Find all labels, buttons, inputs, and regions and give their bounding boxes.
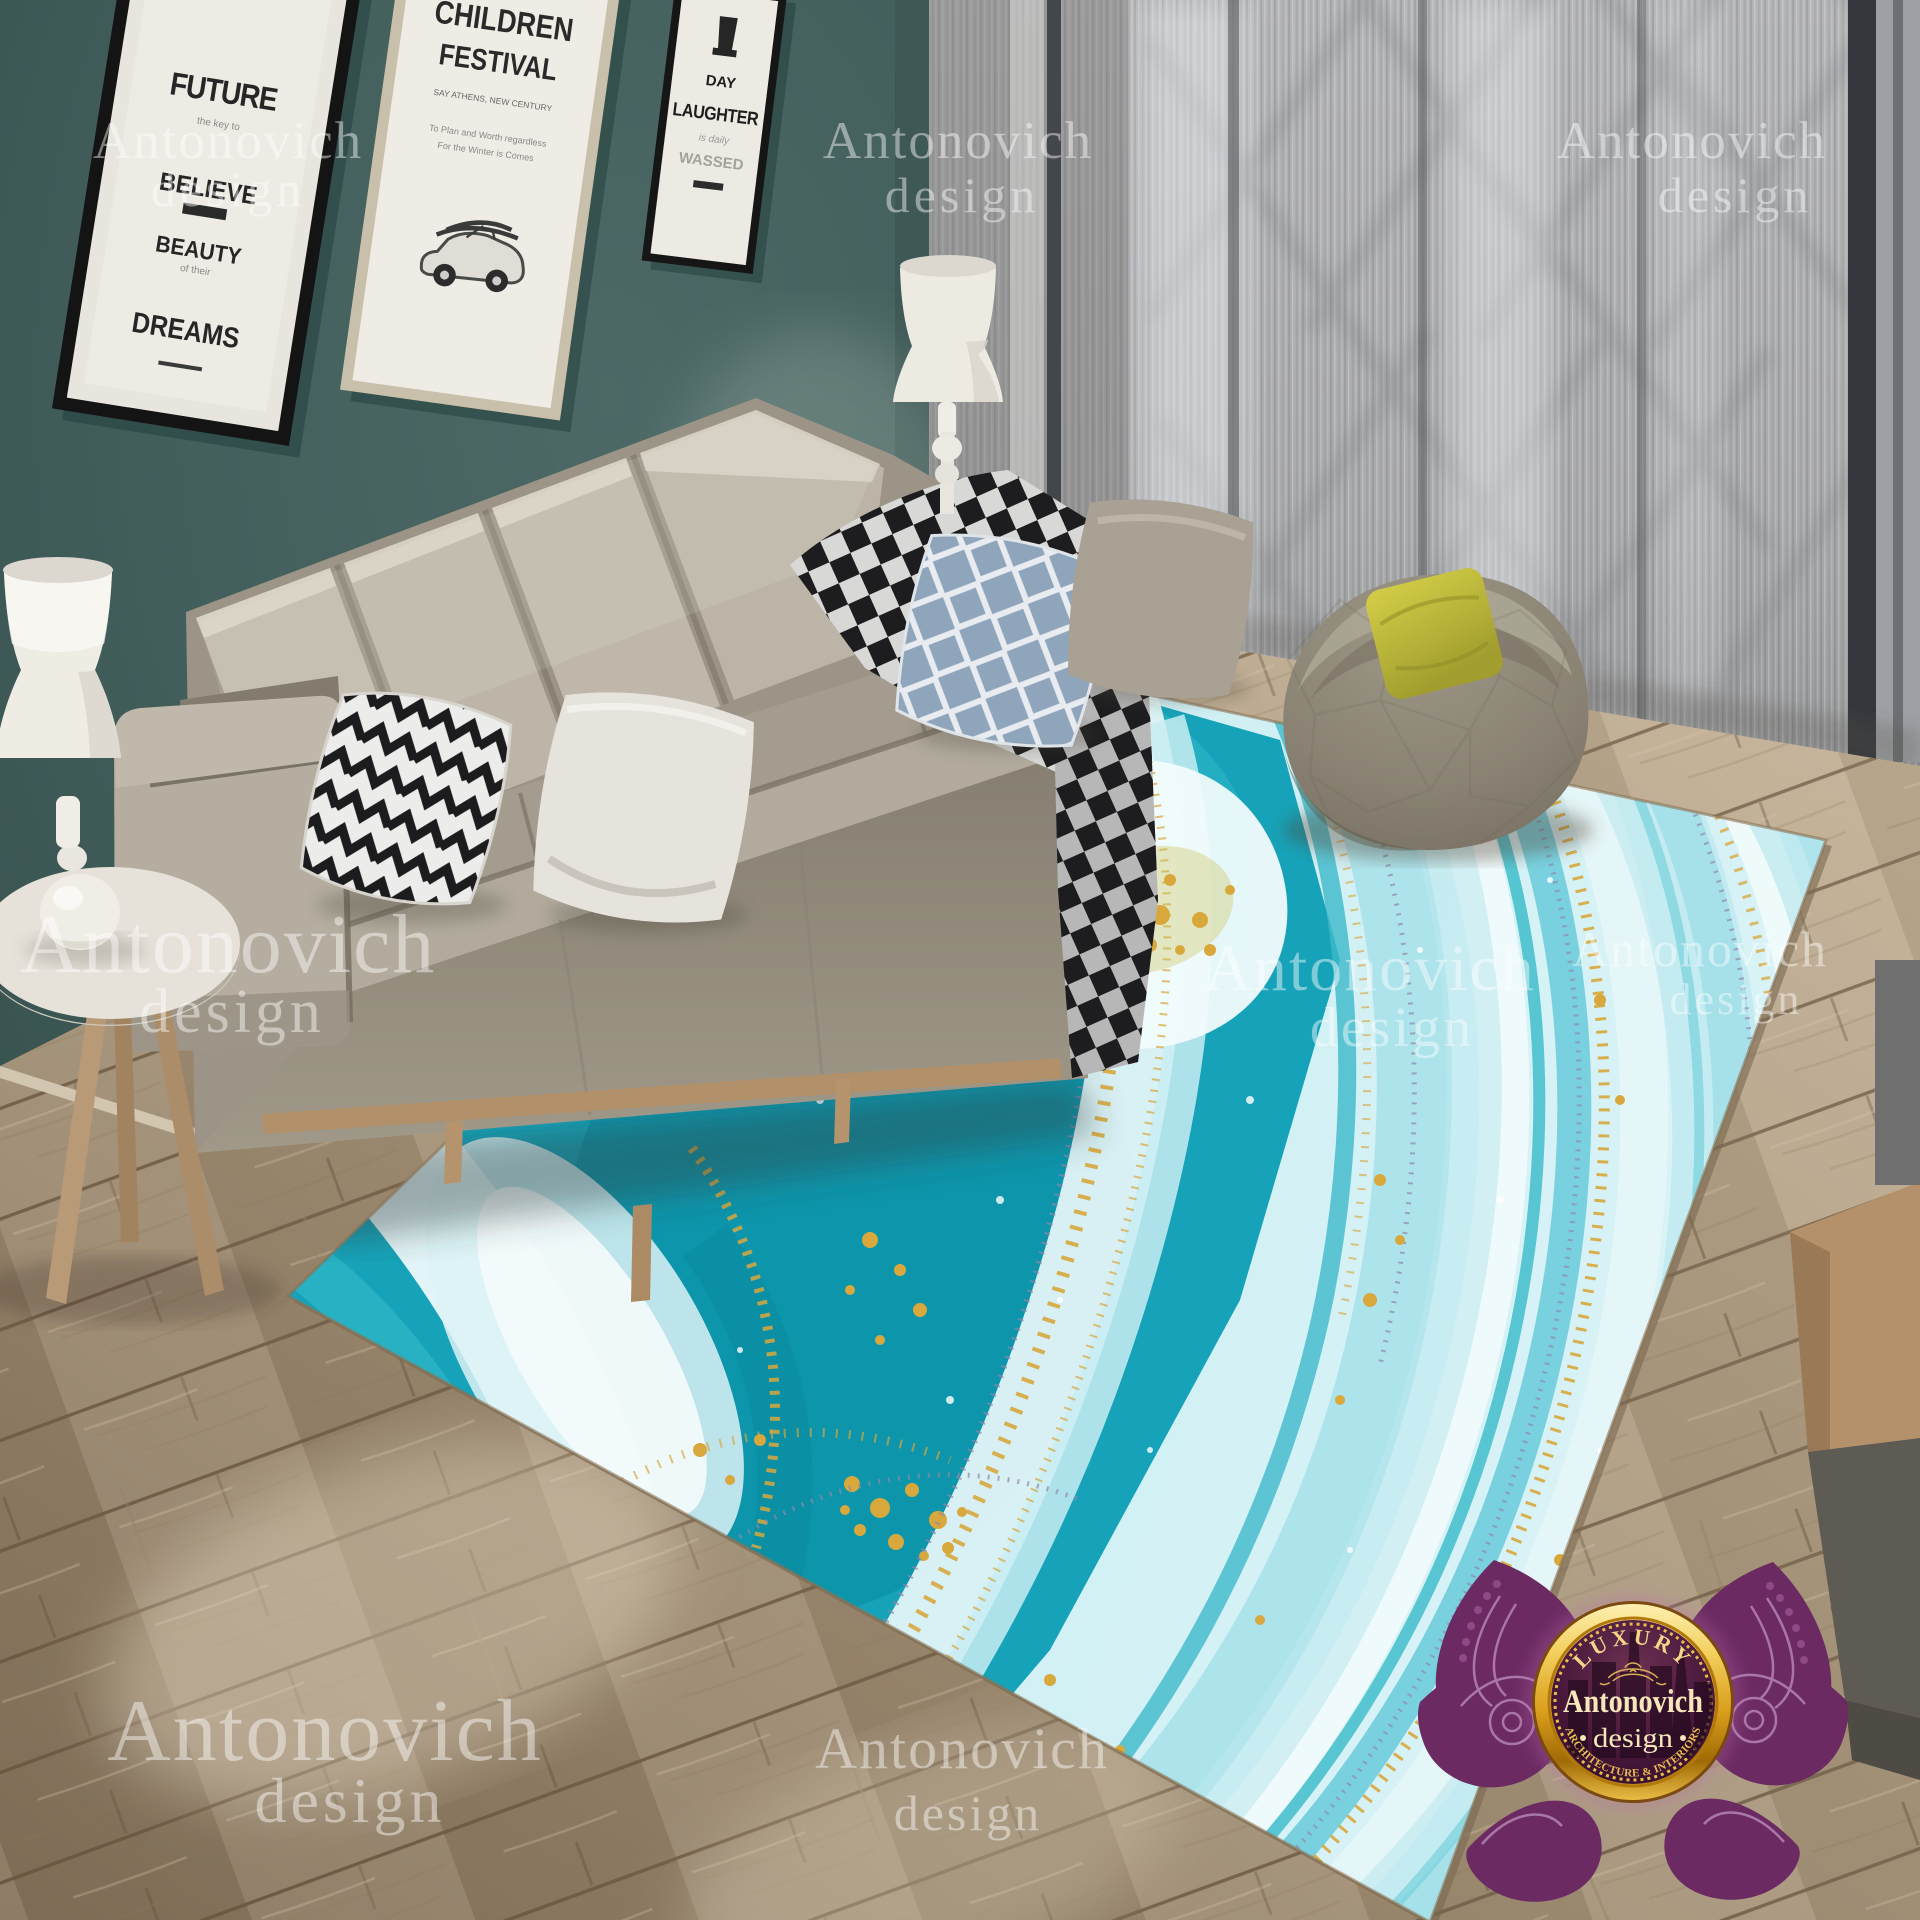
svg-text:Antonovich: Antonovich	[1563, 1684, 1703, 1720]
svg-text:design: design	[894, 1785, 1043, 1841]
svg-text:Antonovich: Antonovich	[815, 1716, 1109, 1781]
svg-text:design: design	[885, 167, 1040, 223]
svg-text:design: design	[139, 978, 325, 1046]
svg-text:design: design	[1658, 167, 1813, 223]
svg-text:design: design	[151, 161, 306, 217]
svg-text:design: design	[1670, 975, 1803, 1024]
svg-text:Antonovich: Antonovich	[823, 112, 1093, 170]
svg-text:Antonovich: Antonovich	[1557, 112, 1827, 170]
svg-text:design: design	[1593, 1723, 1674, 1753]
svg-text:Antonovich: Antonovich	[1572, 921, 1828, 977]
svg-text:design: design	[1310, 997, 1474, 1059]
svg-text:Antonovich: Antonovich	[1204, 932, 1536, 1005]
svg-text:design: design	[254, 1765, 445, 1836]
